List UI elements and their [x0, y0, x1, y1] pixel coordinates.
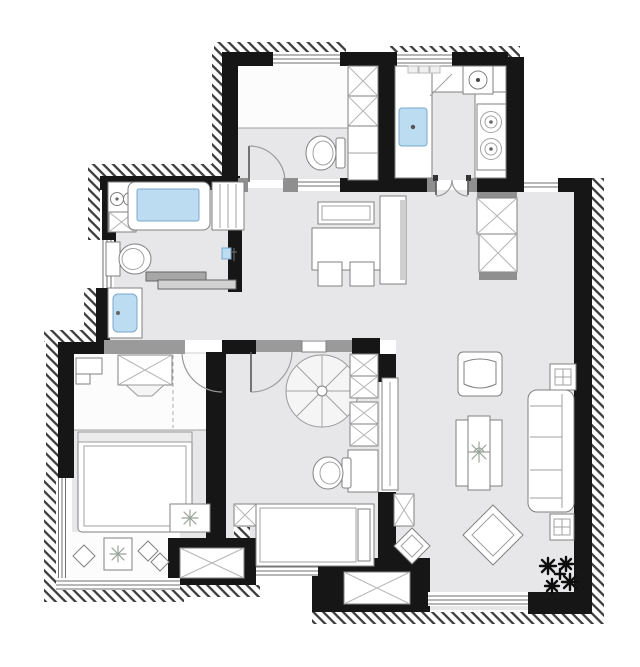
toilet-tank [336, 138, 345, 168]
closet-header [104, 340, 185, 354]
vanity [348, 450, 378, 492]
shower-mixer [222, 248, 231, 259]
cabinet-trim [400, 200, 406, 280]
toilet-tank [106, 242, 120, 276]
spiral-staircase [286, 355, 358, 427]
hatch-band [212, 54, 222, 168]
window-small-room-bottom [298, 179, 340, 191]
sofa [528, 390, 574, 512]
entry-hall [477, 192, 517, 280]
window-living-bottom [428, 592, 528, 606]
hatch-band [88, 176, 100, 240]
dining-chair [350, 262, 374, 286]
dining-chair [318, 262, 342, 286]
pass-through [302, 341, 326, 352]
cabinet-base [479, 272, 517, 280]
hatch-band [592, 178, 604, 624]
rug-with-plant [170, 504, 210, 532]
side-table [550, 514, 574, 540]
hatch-band [44, 478, 56, 592]
drain [411, 125, 415, 129]
hatch-band [88, 164, 234, 176]
small-room-platform [238, 64, 348, 128]
armchair [458, 352, 502, 396]
entry-threshold [524, 178, 558, 192]
hatch-band [46, 342, 58, 478]
window-kitchen-top [397, 52, 452, 66]
sliding-door-panel [158, 280, 236, 289]
dining-area [312, 196, 406, 286]
faucet [116, 311, 120, 315]
pillow [358, 509, 370, 561]
hatch-square [234, 527, 250, 538]
gas-stove [477, 104, 506, 170]
desk [76, 358, 102, 374]
side-table [550, 364, 576, 390]
coffee-table [456, 416, 502, 490]
cabinet-cap [477, 192, 517, 198]
bathtub-water [137, 189, 199, 221]
headboard [78, 432, 192, 442]
floor-plan-svg [0, 0, 640, 667]
window-bedroom-bottom [56, 578, 180, 590]
floor-plan [0, 0, 640, 667]
desk-item [76, 374, 90, 384]
window-small-room-top [273, 52, 340, 66]
window-bedroom-left [56, 478, 68, 578]
sideboard [318, 202, 374, 224]
